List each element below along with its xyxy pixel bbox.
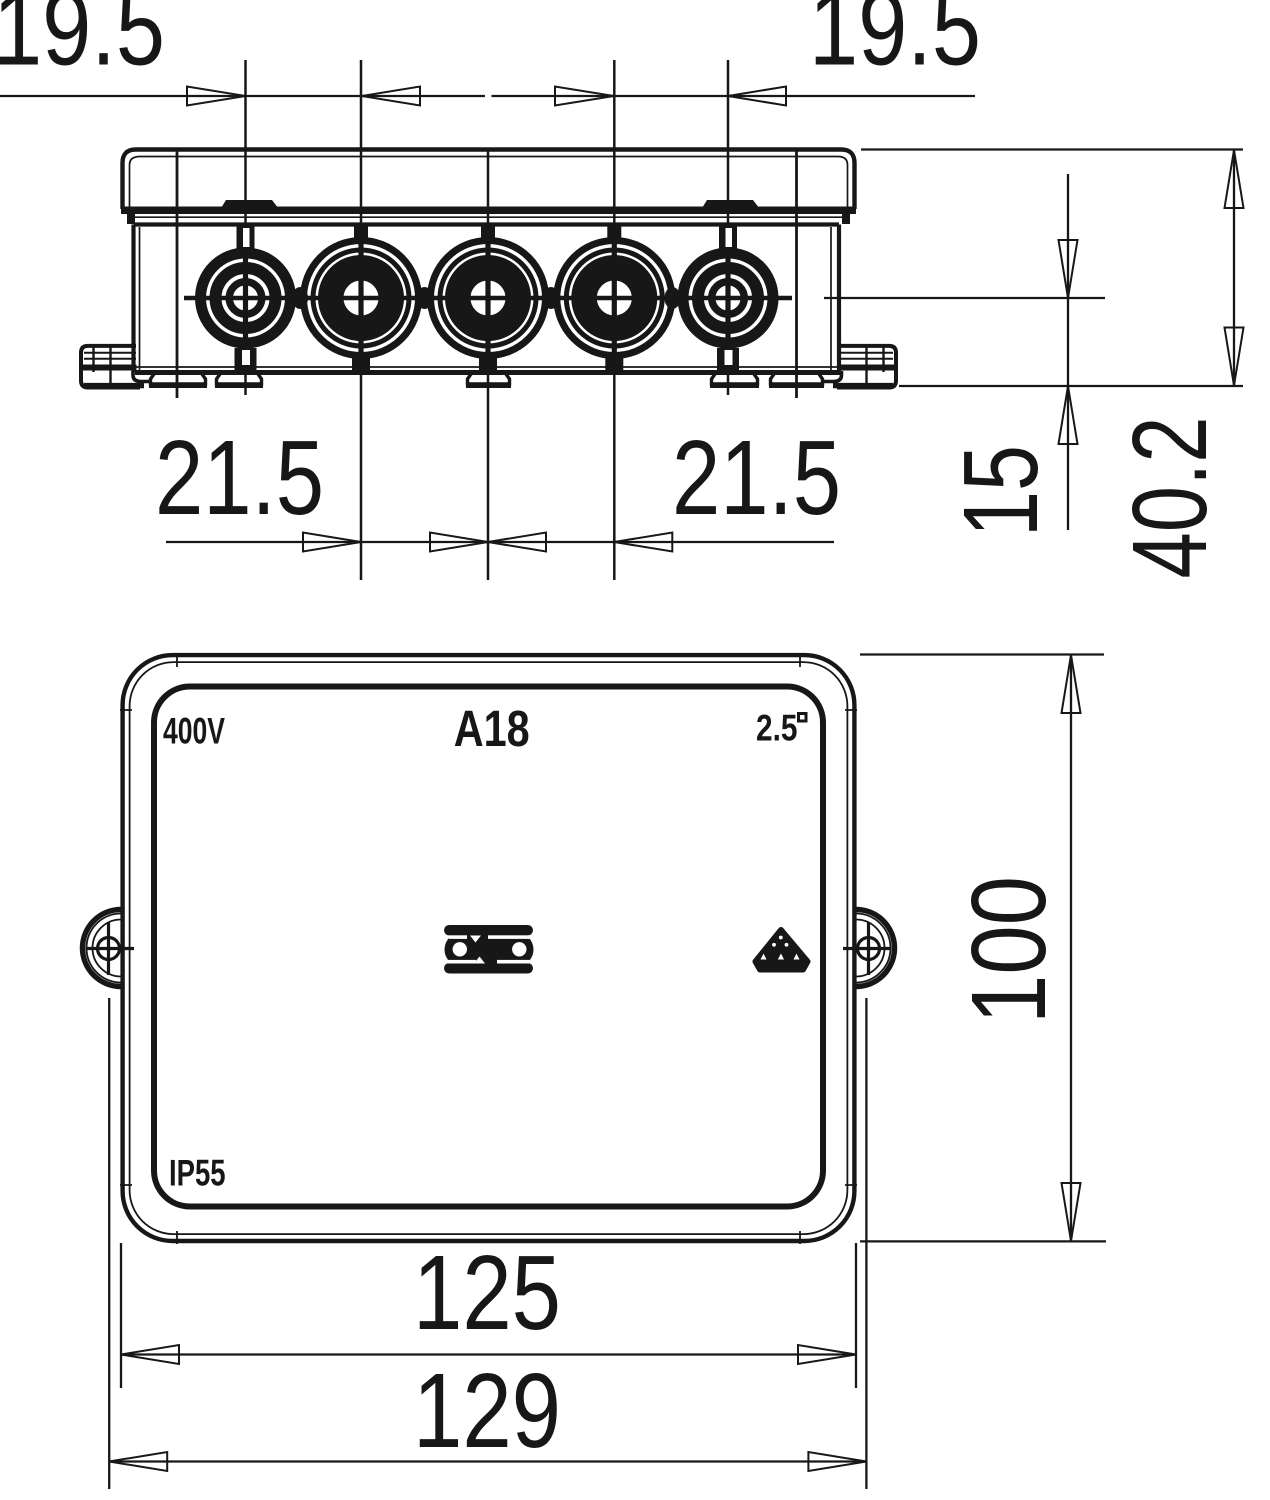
svg-text:2.5: 2.5 <box>756 708 798 749</box>
svg-text:40.2: 40.2 <box>1111 417 1229 579</box>
svg-text:21.5: 21.5 <box>672 419 841 537</box>
svg-text:100: 100 <box>950 876 1068 1024</box>
svg-text:19.5: 19.5 <box>0 0 165 88</box>
svg-text:15: 15 <box>942 445 1060 537</box>
svg-text:19.5: 19.5 <box>809 0 981 88</box>
svg-text:125: 125 <box>413 1234 561 1352</box>
svg-text:A18: A18 <box>454 700 530 757</box>
svg-text:21.5: 21.5 <box>155 419 324 537</box>
svg-text:129: 129 <box>413 1352 561 1470</box>
svg-text:400V: 400V <box>163 711 225 752</box>
svg-text:IP55: IP55 <box>169 1153 226 1194</box>
